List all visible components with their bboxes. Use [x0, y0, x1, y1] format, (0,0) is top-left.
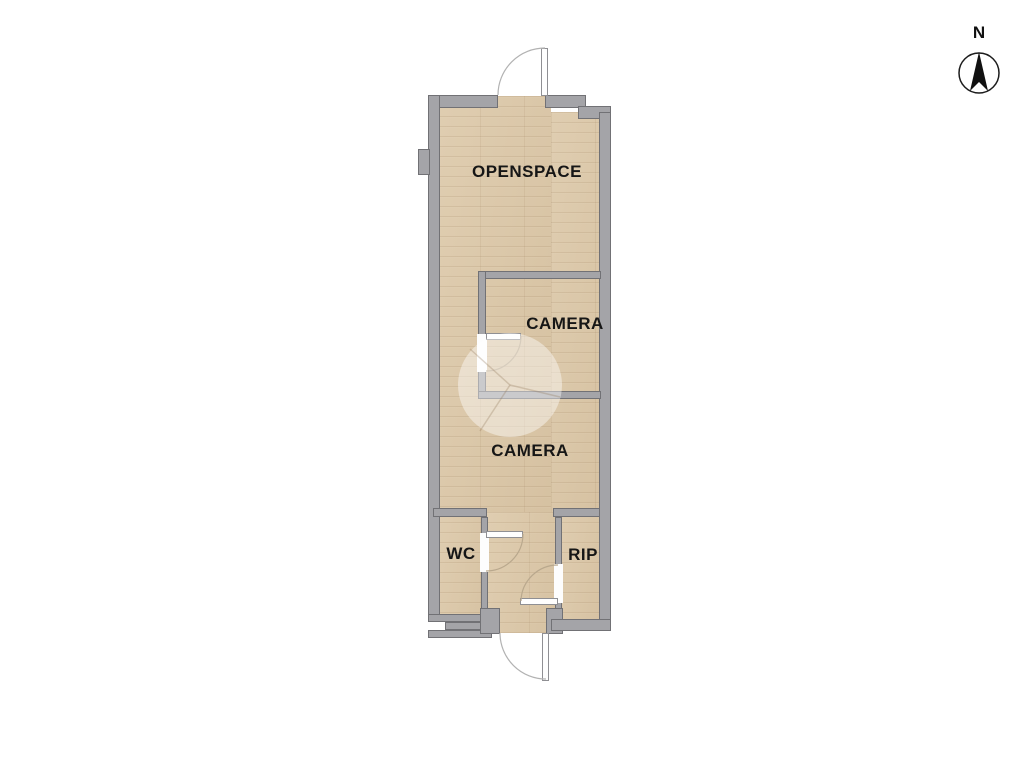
door-arc-exit	[500, 633, 546, 679]
door-leaf-exit	[542, 633, 549, 681]
door-leaf-rip	[520, 598, 558, 605]
north-indicator: N	[950, 24, 1008, 97]
wall-segment	[481, 571, 488, 611]
wall-segment	[478, 271, 486, 335]
wall-segment	[553, 508, 600, 517]
door-arc-entry	[498, 48, 545, 95]
door-opening-wc	[480, 533, 489, 572]
room-label-rip: RIP	[568, 545, 598, 565]
door-leaf-entry	[541, 48, 548, 96]
watermark-lines-icon	[458, 333, 562, 437]
wall-segment	[599, 112, 611, 621]
door-leaf-wc	[486, 531, 523, 538]
room-label-openspace: OPENSPACE	[472, 162, 582, 182]
watermark-circle	[458, 333, 562, 437]
north-label: N	[950, 24, 1008, 42]
room-label-camera-2: CAMERA	[491, 441, 569, 461]
room-label-wc: WC	[446, 544, 475, 564]
floor-plan-canvas: OPENSPACE CAMERA CAMERA WC RIP N	[0, 0, 1024, 768]
wall-segment	[478, 271, 601, 279]
wall-segment	[418, 149, 430, 175]
wall-segment	[555, 517, 562, 565]
wall-segment	[480, 608, 500, 634]
room-label-camera-1: CAMERA	[526, 314, 604, 334]
wall-segment	[433, 508, 487, 517]
wall-segment	[551, 619, 611, 631]
compass-icon	[956, 45, 1002, 97]
